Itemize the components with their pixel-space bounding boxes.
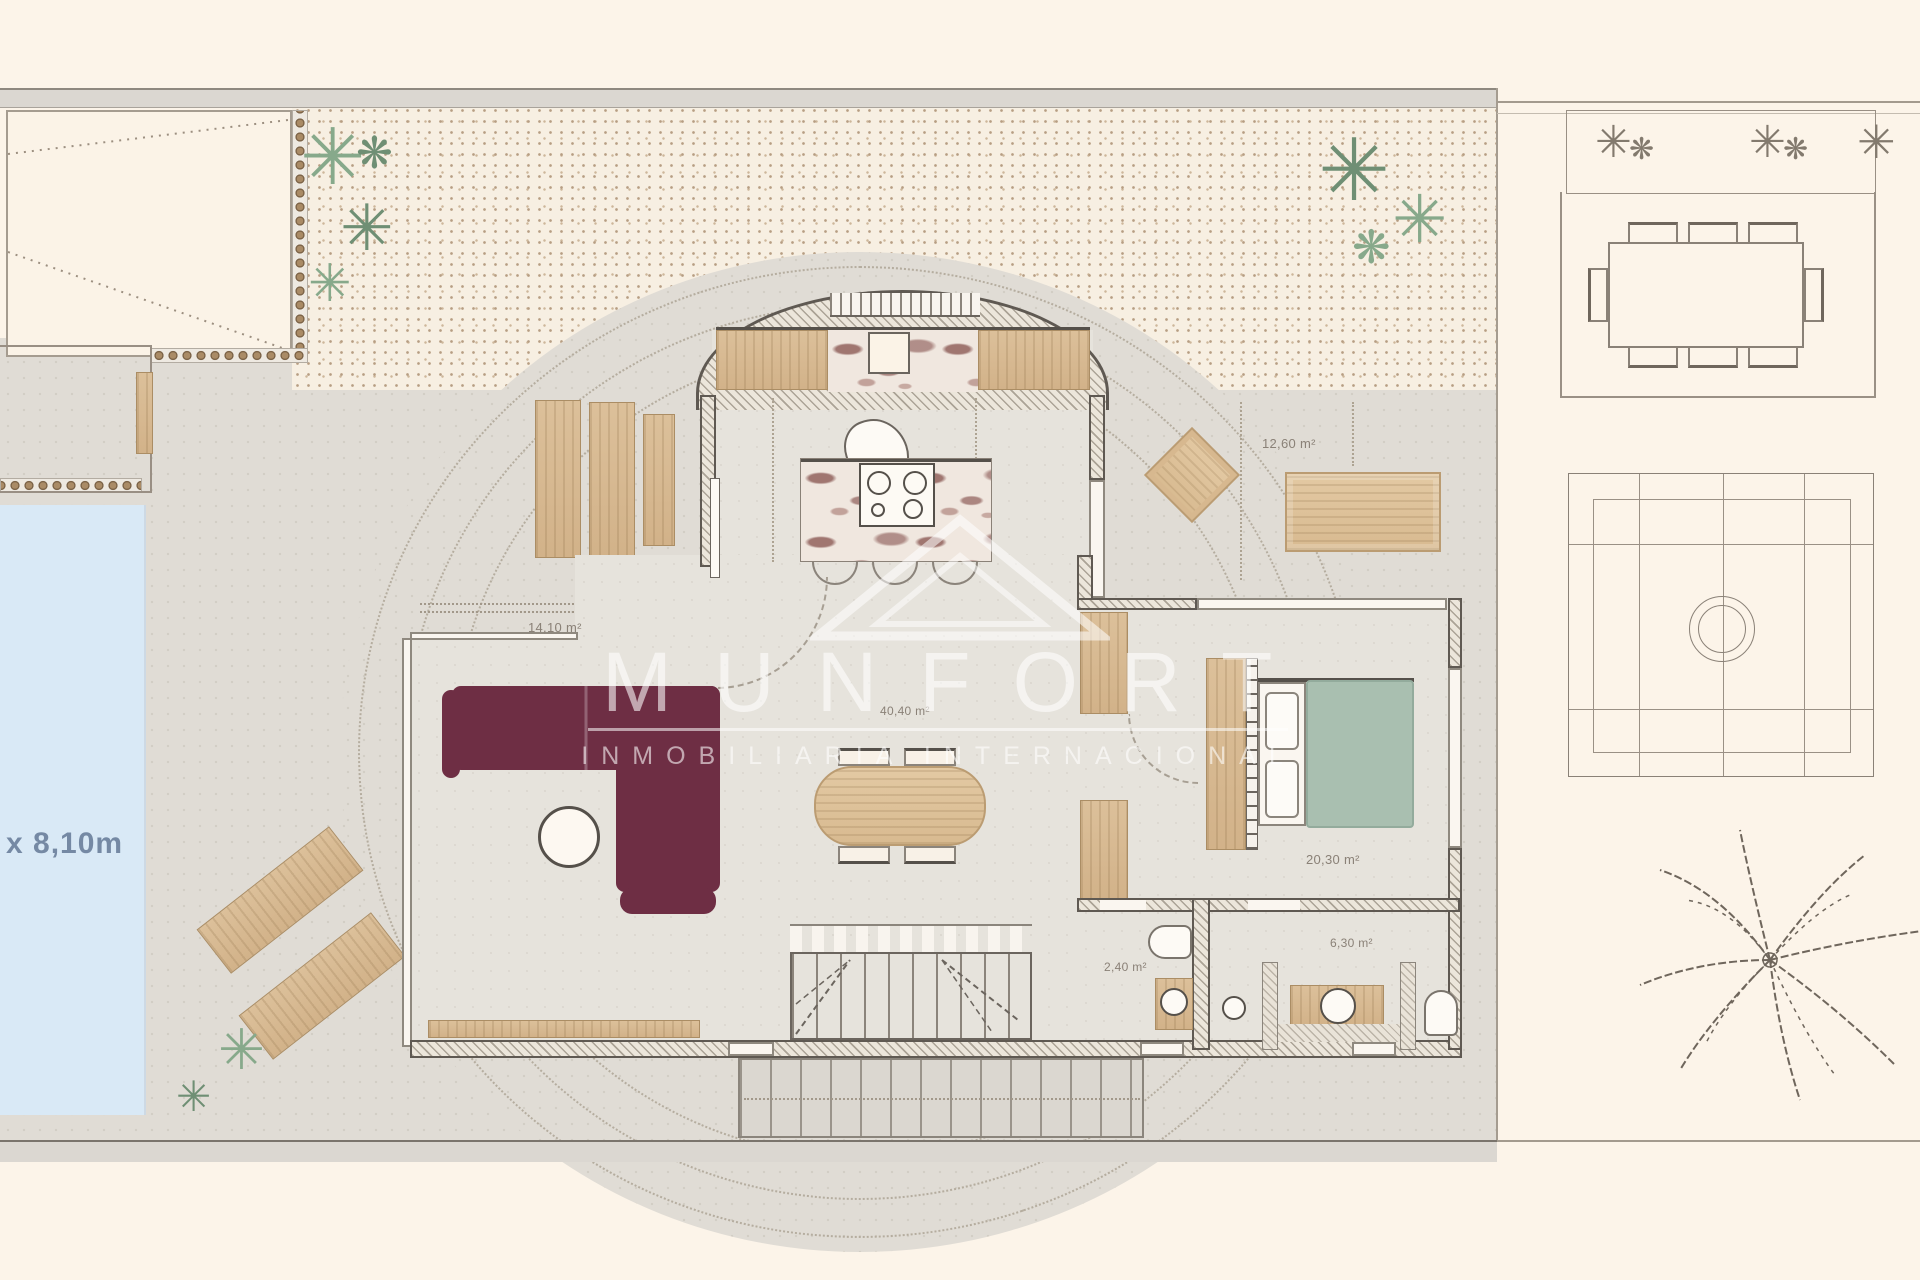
watermark-divider — [588, 728, 1288, 731]
east-window — [1448, 668, 1462, 848]
bottom-boundary-wall — [0, 1140, 1497, 1162]
south-window — [1352, 1042, 1396, 1056]
carport-sight-lines — [8, 112, 290, 355]
shower-floor — [1278, 1024, 1400, 1042]
pavilion-grid-line — [1804, 474, 1805, 776]
pool: x 8,10m — [0, 505, 146, 1115]
patio-bottom-line — [1560, 396, 1876, 398]
area-label-covered-terrace: 14,10 m² — [528, 620, 582, 635]
palm-plant: ✳ — [1392, 186, 1447, 252]
bathroom-door-gap — [1248, 900, 1300, 910]
area-label-wc: 2,40 m² — [1104, 960, 1147, 974]
patio-left-line — [1560, 192, 1562, 398]
palm-tree — [1600, 800, 1920, 1130]
right-boundary-line — [1496, 88, 1498, 1142]
bottom-right-line — [1497, 1140, 1920, 1142]
watermark-brand: MUNFORT — [560, 634, 1304, 731]
kitchen-wall-right — [1089, 395, 1105, 480]
carport — [6, 110, 292, 357]
kitchen-sink-window — [868, 332, 910, 374]
shrub: ✳ — [1749, 121, 1786, 165]
shrub: ❋ — [1783, 135, 1808, 165]
pavilion-grid-line — [1569, 544, 1873, 545]
deck-lounger — [643, 414, 675, 546]
pergola-slats — [790, 924, 1032, 954]
toilet — [1424, 990, 1458, 1036]
shower-niche-wall — [1400, 962, 1416, 1050]
entry-court — [0, 345, 152, 493]
dining-table — [814, 766, 986, 846]
shrub: ✳ — [1857, 119, 1896, 165]
top-boundary-wall — [0, 88, 1497, 108]
watermark-logo — [810, 514, 1110, 644]
dining-chair — [904, 846, 956, 864]
bath-sink — [1320, 988, 1356, 1024]
stair-direction-lines — [792, 954, 1030, 1038]
outdoor-chair — [1688, 346, 1738, 368]
coffee-table — [538, 806, 600, 868]
right-top-line — [1497, 101, 1920, 103]
guide-line — [1352, 402, 1354, 466]
sofa-arm — [442, 690, 460, 778]
agave-plant: ✳ — [176, 1076, 211, 1118]
pool-size-label: x 8,10m — [6, 827, 123, 861]
outdoor-chair — [1628, 222, 1678, 244]
palm-plant: ✳ — [1318, 128, 1390, 214]
south-wall — [410, 1040, 1462, 1058]
bedroom-top-window — [1197, 598, 1447, 610]
pavilion-circle-inner — [1698, 605, 1746, 653]
agave-plant: ✳ — [218, 1022, 265, 1078]
deck-lounger — [535, 400, 581, 558]
patio-right-line — [1874, 192, 1876, 398]
toilet — [1148, 925, 1192, 959]
step-center-line — [744, 1098, 1140, 1100]
shrub: ✳ — [1595, 121, 1632, 165]
wc-sink — [1160, 988, 1188, 1016]
pavilion-grid-line — [1639, 474, 1640, 776]
bathroom-door-gap — [1100, 900, 1146, 910]
area-label-bathroom: 6,30 m² — [1330, 936, 1373, 950]
outdoor-chair — [1804, 268, 1824, 322]
staircase — [790, 952, 1032, 1040]
bed-duvet — [1306, 680, 1414, 828]
floor-plan: x 8,10m ✳ ✳ ✳ ✳ ✳ ❋ ✳ ✳ ❋ — [0, 0, 1920, 1280]
pedestal-sink — [1222, 996, 1246, 1020]
outdoor-chair — [1628, 346, 1678, 368]
entry-door-leaf — [710, 478, 720, 578]
kitchen-cabinet — [978, 330, 1090, 390]
east-wall — [1448, 598, 1462, 668]
pavilion-grid-line — [1569, 709, 1873, 710]
planter-strip: ✳ ❋ ✳ ❋ ✳ — [1566, 110, 1876, 194]
guide-line — [1240, 402, 1242, 580]
outdoor-chair — [1748, 346, 1798, 368]
terrace-table — [1285, 472, 1441, 552]
hedge-beads-horizontal — [150, 348, 308, 363]
dining-chair — [838, 846, 890, 864]
outdoor-chair — [1748, 222, 1798, 244]
wardrobe — [1080, 800, 1128, 900]
sofa-ottoman — [620, 888, 716, 914]
guide-line — [772, 398, 774, 562]
deck-lounger — [589, 402, 635, 558]
outdoor-chair — [1588, 268, 1608, 322]
exterior-steps — [738, 1058, 1144, 1138]
bathroom-divider-wall — [1192, 898, 1210, 1050]
watermark-subtitle: INMOBILIARIA INTERNACIONAL — [560, 742, 1304, 771]
area-label-bedroom: 20,30 m² — [1306, 852, 1360, 867]
south-window — [1140, 1042, 1184, 1056]
shrub: ❋ — [1629, 135, 1654, 165]
agave-plant: ✳ — [340, 196, 394, 260]
sideboard — [428, 1020, 700, 1038]
kitchen-window-band — [830, 293, 980, 317]
area-label-side-terrace: 12,60 m² — [1262, 436, 1316, 451]
palm-plant: ❋ — [1352, 224, 1391, 270]
burner — [867, 471, 891, 495]
outdoor-chair — [1688, 222, 1738, 244]
outdoor-dining-table — [1608, 242, 1804, 348]
entry-gate — [136, 372, 153, 454]
living-glass-wall — [402, 638, 412, 1047]
island-edge — [801, 459, 991, 462]
burner — [903, 471, 927, 495]
pavilion — [1568, 473, 1874, 777]
agave-plant: ❋ — [356, 132, 393, 176]
kitchen-cabinet — [716, 330, 828, 390]
shower-niche-wall — [1262, 962, 1278, 1050]
south-window — [728, 1042, 774, 1056]
agave-plant: ✳ — [308, 258, 352, 310]
